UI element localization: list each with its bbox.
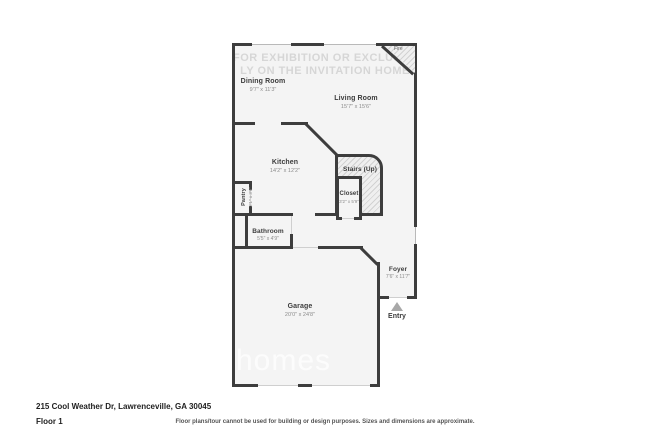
room-label-bathroom: Bathroom 5'5" x 4'9" <box>233 228 303 242</box>
wall <box>232 122 255 125</box>
room-name: Pantry <box>241 188 248 206</box>
floorplan-page: FOR EXHIBITION OR EXCLUSIVE LY ON THE IN… <box>0 0 650 433</box>
entry-door-opening <box>389 297 407 298</box>
wall <box>298 384 312 387</box>
fireplace-label: Fire <box>394 46 403 52</box>
wall <box>232 43 252 46</box>
disclaimer-text: Floor plans/tour cannot be used for buil… <box>0 419 650 425</box>
window <box>415 227 416 244</box>
door-opening <box>342 218 354 219</box>
address-line: 215 Cool Weather Dr, Lawrenceville, GA 3… <box>36 402 211 411</box>
wall <box>377 296 389 299</box>
wall <box>318 246 363 249</box>
wall <box>407 296 417 299</box>
room-name: Garage <box>260 303 340 312</box>
room-label-closet: Closet 3'2" x 5'9" <box>324 191 374 204</box>
room-name: Stairs (Up) <box>325 166 395 174</box>
room-label-kitchen: Kitchen 14'2" x 12'2" <box>245 159 325 175</box>
door-opening <box>342 216 354 222</box>
garage-door-opening <box>312 385 370 386</box>
room-dims: 15'7" x 15'6" <box>316 104 396 111</box>
room-name: Dining Room <box>223 78 303 87</box>
room-label-living: Living Room 15'7" x 15'6" <box>316 95 396 111</box>
door-opening <box>293 247 318 248</box>
homes-logo-watermark: homes <box>236 344 331 378</box>
room-dims: 5'5" x 4'9" <box>233 236 303 242</box>
room-name: Living Room <box>316 95 396 104</box>
room-dims: 9'7" x 11'3" <box>223 87 303 94</box>
room-label-foyer: Foyer 7'6" x 11'7" <box>368 266 428 280</box>
room-label-dining: Dining Room 9'7" x 11'3" <box>223 78 303 94</box>
room-label-stairs: Stairs (Up) <box>325 166 395 174</box>
room-dims: 2'1" x 3'6" <box>248 187 254 207</box>
room-name: Kitchen <box>245 159 325 168</box>
wall <box>232 246 293 249</box>
room-dims: 14'2" x 12'2" <box>245 168 325 175</box>
garage-door-opening <box>258 385 298 386</box>
room-label-garage: Garage 20'0" x 24'8" <box>260 303 340 319</box>
room-dims: 20'0" x 24'8" <box>260 312 340 319</box>
entry-arrow-icon <box>391 302 403 311</box>
watermark-line: LY ON THE INVITATION HOME <box>233 65 417 77</box>
wall <box>232 384 258 387</box>
wall <box>232 213 293 216</box>
room-dims: 7'6" x 11'7" <box>368 274 428 280</box>
wall <box>291 43 324 46</box>
window <box>252 44 291 45</box>
entry-label: Entry <box>374 313 420 320</box>
room-dims: 3'2" x 5'9" <box>324 199 374 205</box>
room-label-pantry: Pantry 2'1" x 3'6" <box>232 181 262 213</box>
room-name: Closet <box>324 191 374 199</box>
window <box>324 44 376 45</box>
room-name: Bathroom <box>233 228 303 236</box>
wall <box>377 262 380 387</box>
room-name: Foyer <box>368 266 428 274</box>
